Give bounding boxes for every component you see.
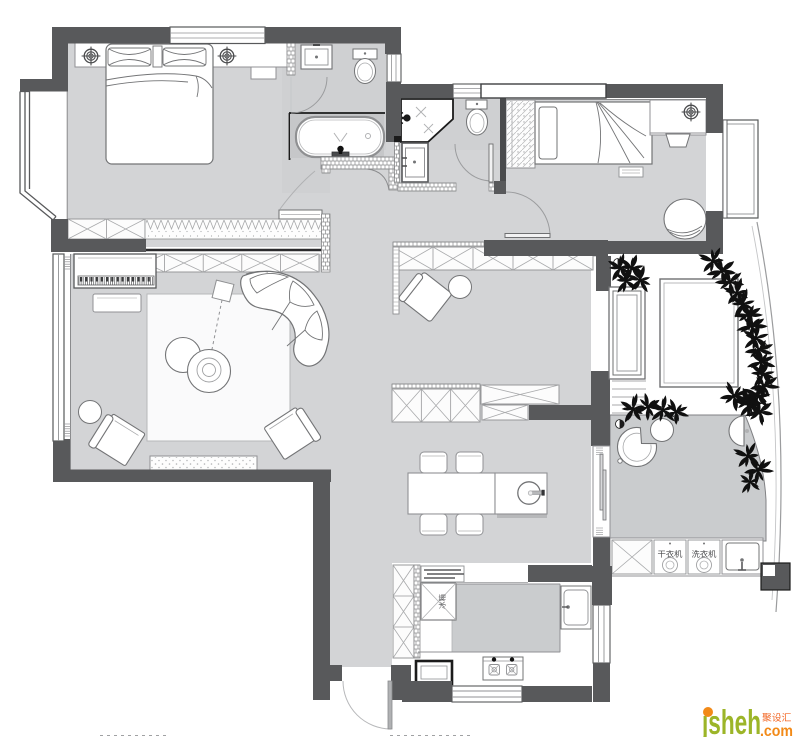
svg-text:.com: .com <box>760 723 793 737</box>
